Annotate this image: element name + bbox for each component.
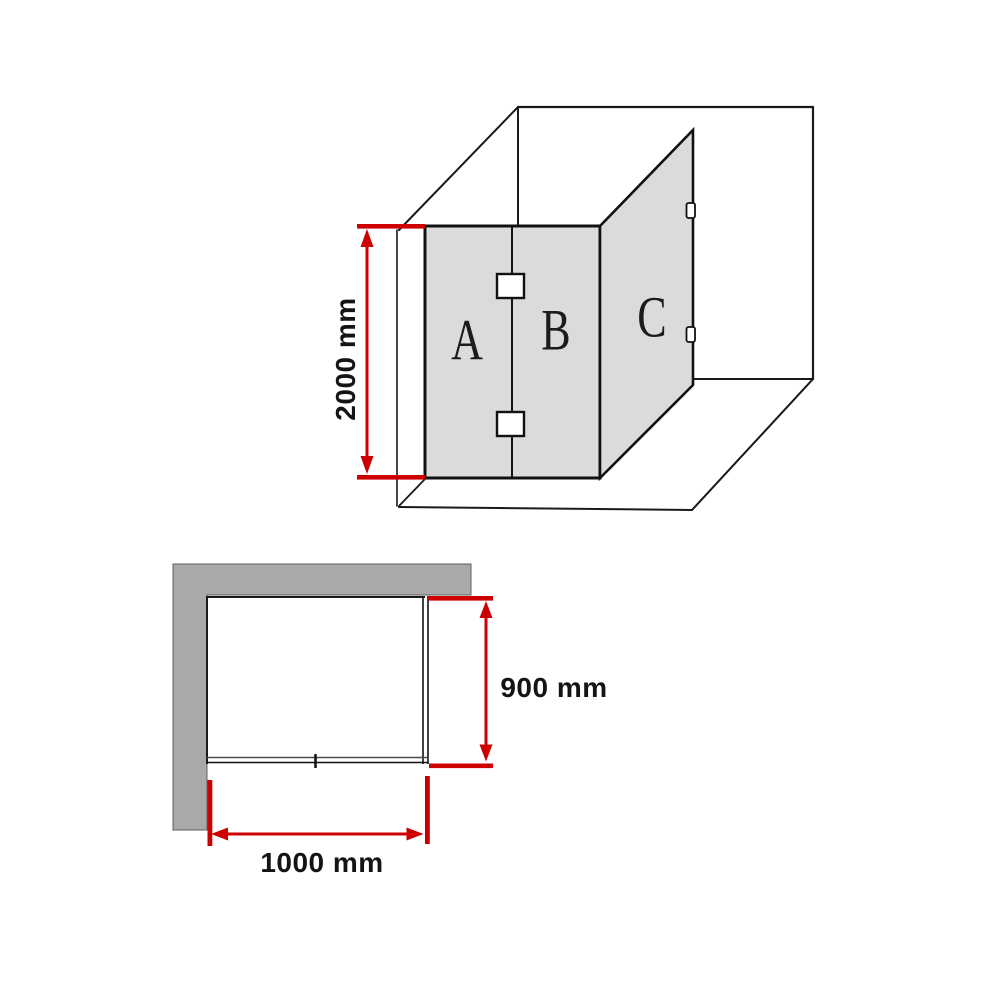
height-dim-extension-bottom: [357, 475, 425, 480]
room-ceiling-left-diagonal: [399, 107, 518, 230]
height-dim-arrow-up-icon: [361, 229, 374, 247]
depth-dim-arrow-up-icon: [480, 601, 493, 618]
panel-c-bracket-top-icon: [687, 203, 696, 218]
panel-a-label: A: [451, 312, 483, 370]
width-dimension: [208, 776, 430, 846]
room-floor-left-diagonal: [399, 478, 426, 506]
width-dim-arrow-left-icon: [211, 828, 228, 841]
depth-dimension: [427, 596, 493, 768]
room-floor-front-edge: [399, 507, 692, 510]
diagram-drawing: [0, 0, 1000, 1000]
room-inner-border-plan: [207, 597, 425, 764]
width-dim-extension-left: [208, 780, 213, 846]
hinge-bottom-icon: [497, 412, 524, 436]
panel-b-label: B: [541, 302, 570, 360]
hinge-top-icon: [497, 274, 524, 298]
width-dim-extension-right: [425, 776, 430, 844]
shower-screen-dimension-diagram: A B C 2000 mm 900 mm 1000 mm: [0, 0, 1000, 1000]
width-dimension-label: 1000 mm: [260, 849, 383, 877]
height-dim-arrow-down-icon: [361, 456, 374, 474]
width-dim-arrow-right-icon: [407, 828, 424, 841]
depth-dim-extension-top: [427, 596, 493, 601]
depth-dimension-label: 900 mm: [500, 674, 607, 702]
panel-c-bracket-bottom-icon: [687, 327, 696, 342]
panel-c-label: C: [637, 289, 666, 347]
depth-dim-extension-bottom: [429, 764, 493, 769]
room-floor-right-diagonal: [692, 379, 813, 510]
depth-dim-arrow-down-icon: [480, 745, 493, 762]
height-dimension: [357, 224, 425, 480]
height-dim-extension-top: [357, 224, 425, 229]
height-dimension-label: 2000 mm: [332, 297, 360, 420]
